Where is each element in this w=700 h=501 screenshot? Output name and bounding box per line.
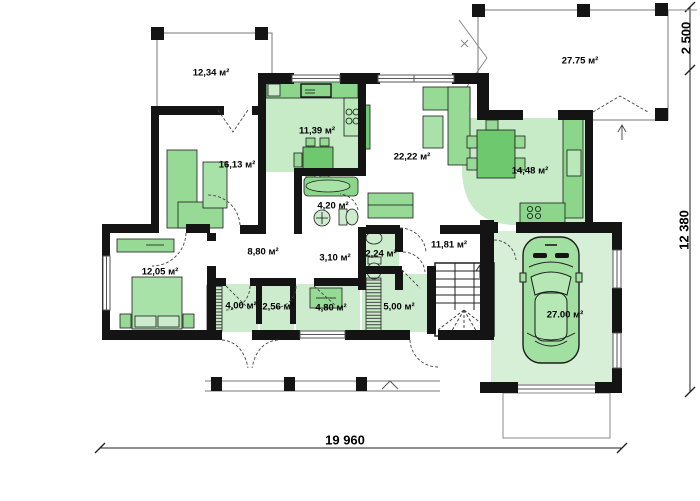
room-label-boiler-room: 5,00 м² — [383, 302, 414, 313]
dimension-terrace-depth: 2 500 — [679, 22, 694, 55]
room-label-hall-stairs: 11,81 м² — [431, 240, 467, 251]
room-label-hallway: 8,80 м² — [247, 247, 278, 258]
porch-outline — [205, 377, 440, 391]
driveway-outline — [503, 385, 610, 438]
room-label-closet: 2,56 м² — [262, 302, 293, 313]
room-label-living-room: 22,22 м² — [394, 152, 431, 163]
room-label-room-left: 16,13 м² — [219, 160, 256, 171]
room-label-bedroom: 12,05 м² — [142, 267, 179, 278]
bed-bedroom — [117, 239, 194, 329]
room-label-vestibule: 4,00 м² — [225, 301, 256, 312]
car-top-view — [520, 237, 582, 363]
floor-plan-page: 12,34 м² 27.75 м² 11,39 м² 16,13 м² 22,2… — [0, 0, 700, 501]
room-label-garage: 27.00 м² — [547, 310, 584, 321]
dimension-width: 19 960 — [325, 433, 365, 448]
room-label-utility: 4,80 м² — [315, 303, 346, 314]
room-label-wc: 2,24 м² — [365, 249, 396, 260]
room-label-dining: 14,48 м² — [512, 166, 549, 177]
room-label-terrace-upper-left: 12,34 м² — [193, 68, 230, 79]
room-label-bathroom: 4,20 м² — [317, 201, 348, 212]
room-label-corridor: 3,10 м² — [319, 253, 350, 264]
floor-plan-drawing — [0, 0, 700, 501]
dimension-overall-depth: 12 380 — [677, 210, 692, 250]
wardrobe-boiler — [366, 278, 381, 332]
room-label-terrace-upper-right: 27.75 м² — [562, 56, 599, 67]
room-label-kitchen: 11,39 м² — [299, 126, 335, 137]
